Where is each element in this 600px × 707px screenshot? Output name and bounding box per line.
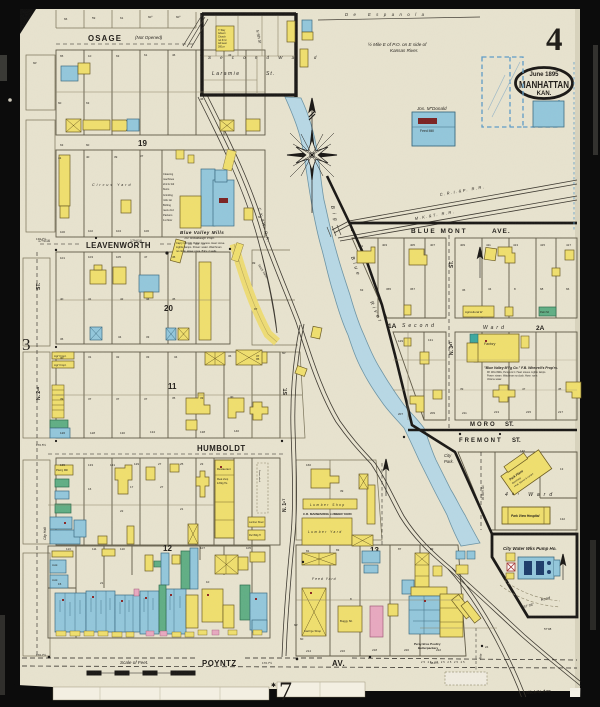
svg-text:7: 7 — [279, 677, 292, 706]
svg-text:✱: ✱ — [271, 682, 276, 689]
